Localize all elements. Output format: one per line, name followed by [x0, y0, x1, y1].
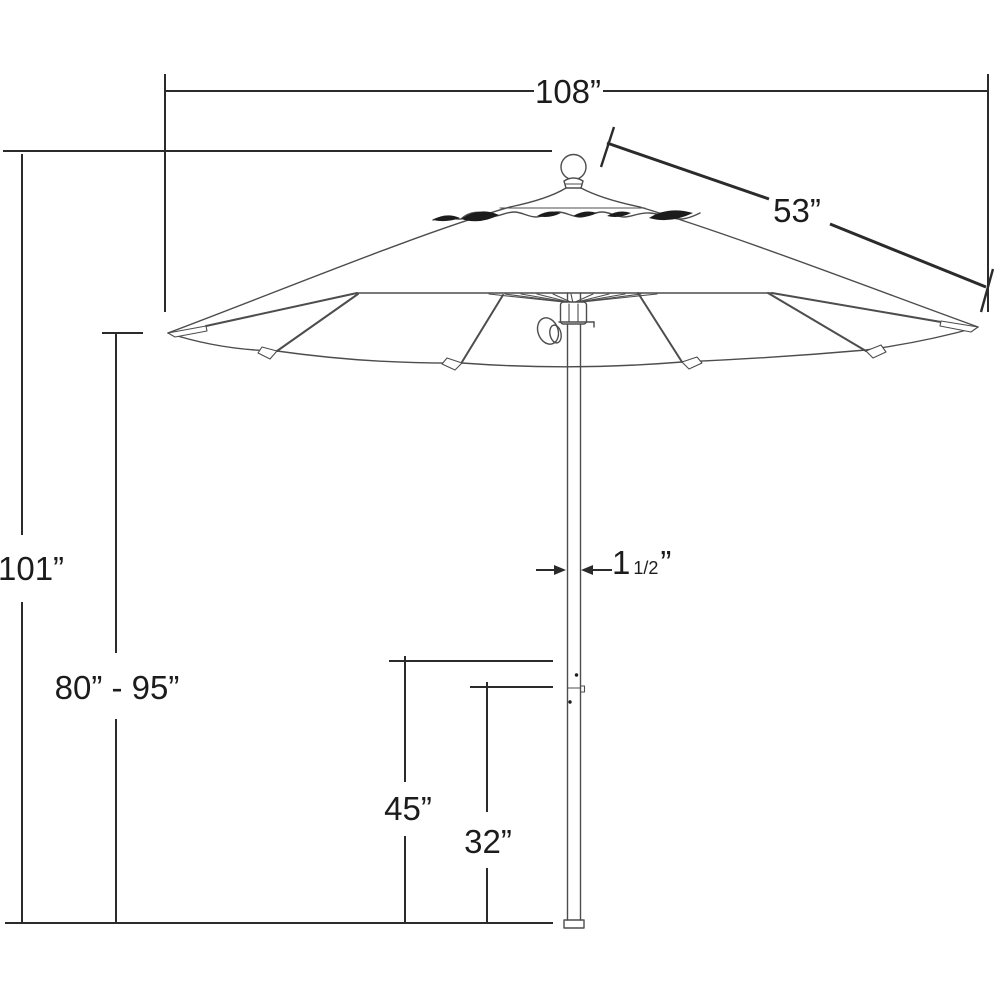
dimension-lower-height: 45” [384, 656, 553, 923]
label-lower-height: 45” [384, 790, 432, 827]
dimension-base-height: 32” [464, 682, 553, 923]
label-rib-length: 53” [773, 192, 821, 229]
dimension-canopy-width: 108” [165, 73, 988, 312]
label-base-height: 32” [464, 823, 512, 860]
label-canopy-height-range: 80” - 95” [55, 669, 180, 706]
canopy-bottom-edge [168, 327, 978, 367]
label-canopy-width: 108” [535, 73, 601, 110]
pole-joint [568, 673, 585, 703]
dimension-canopy-height-range: 80” - 95” [55, 333, 180, 923]
arrow-right-icon [554, 565, 566, 575]
canopy-vent-band [433, 208, 700, 221]
dimension-pole-diameter: 11/2” [536, 544, 671, 581]
umbrella-dimension-diagram: 108” 53” 101” 80” - 95” 45” 32” [0, 0, 1000, 1000]
umbrella-drawing [168, 155, 978, 929]
pole-foot [564, 920, 584, 928]
label-overall-height: 101” [0, 550, 64, 587]
finial-ball [561, 155, 586, 189]
umbrella-pole [564, 293, 585, 928]
umbrella-hub [561, 302, 587, 324]
arrow-left-icon [581, 565, 593, 575]
label-pole-diameter: 11/2” [612, 544, 671, 581]
dimension-overall-height: 101” [0, 151, 552, 923]
